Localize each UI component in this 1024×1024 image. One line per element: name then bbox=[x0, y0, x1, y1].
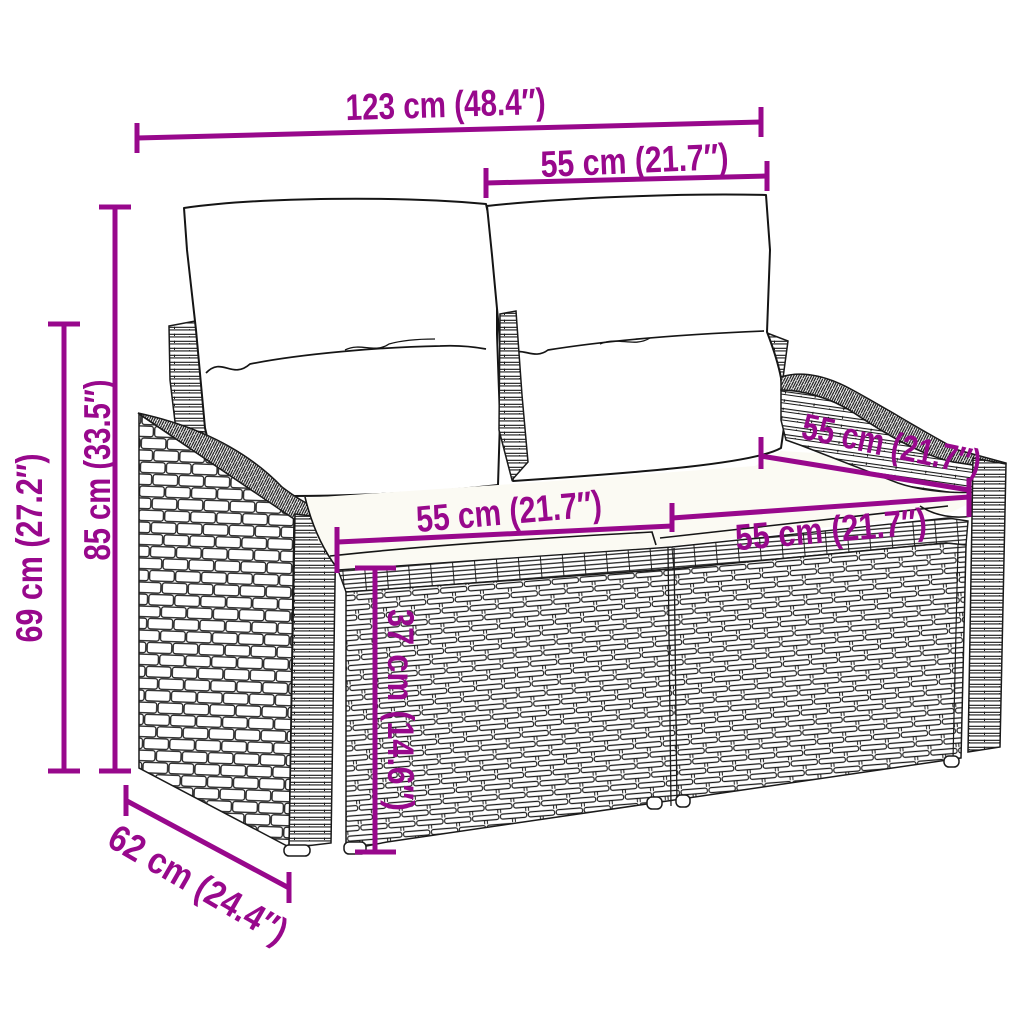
svg-text:55 cm (21.7″): 55 cm (21.7″) bbox=[540, 136, 730, 185]
svg-text:37 cm (14.6″): 37 cm (14.6″) bbox=[380, 609, 421, 811]
svg-text:85 cm (33.5″): 85 cm (33.5″) bbox=[77, 380, 118, 561]
svg-text:123 cm (48.4″): 123 cm (48.4″) bbox=[345, 81, 546, 128]
svg-text:69 cm (27.2″): 69 cm (27.2″) bbox=[9, 454, 50, 643]
